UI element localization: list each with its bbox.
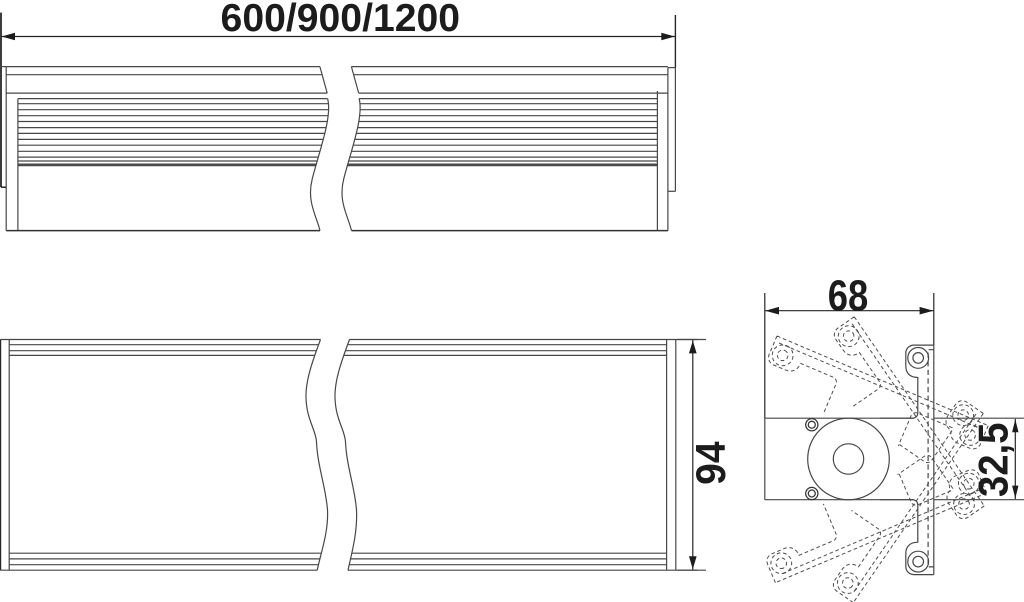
svg-text:94: 94 bbox=[687, 441, 734, 485]
svg-text:68: 68 bbox=[828, 273, 869, 321]
svg-text:32,5: 32,5 bbox=[969, 423, 1016, 497]
svg-text:600/900/1200: 600/900/1200 bbox=[221, 0, 461, 40]
